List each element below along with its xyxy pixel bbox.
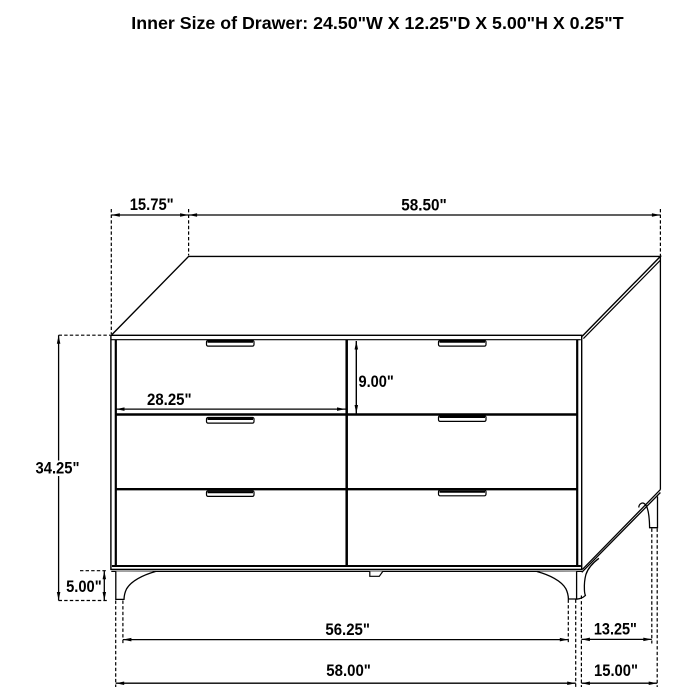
svg-text:Inner Size of Drawer: 24.50"W: Inner Size of Drawer: 24.50"W X 12.25"D … bbox=[131, 13, 623, 33]
svg-text:15.75": 15.75" bbox=[130, 195, 174, 214]
svg-text:13.25": 13.25" bbox=[594, 620, 637, 639]
svg-text:5.00": 5.00" bbox=[66, 577, 102, 596]
svg-text:34.25": 34.25" bbox=[36, 458, 80, 477]
svg-text:28.25": 28.25" bbox=[147, 390, 192, 409]
svg-text:56.25": 56.25" bbox=[325, 620, 370, 639]
svg-text:9.00": 9.00" bbox=[359, 372, 394, 391]
svg-text:58.00": 58.00" bbox=[326, 661, 371, 680]
svg-text:15.00": 15.00" bbox=[594, 661, 638, 680]
svg-text:58.50": 58.50" bbox=[401, 195, 447, 214]
